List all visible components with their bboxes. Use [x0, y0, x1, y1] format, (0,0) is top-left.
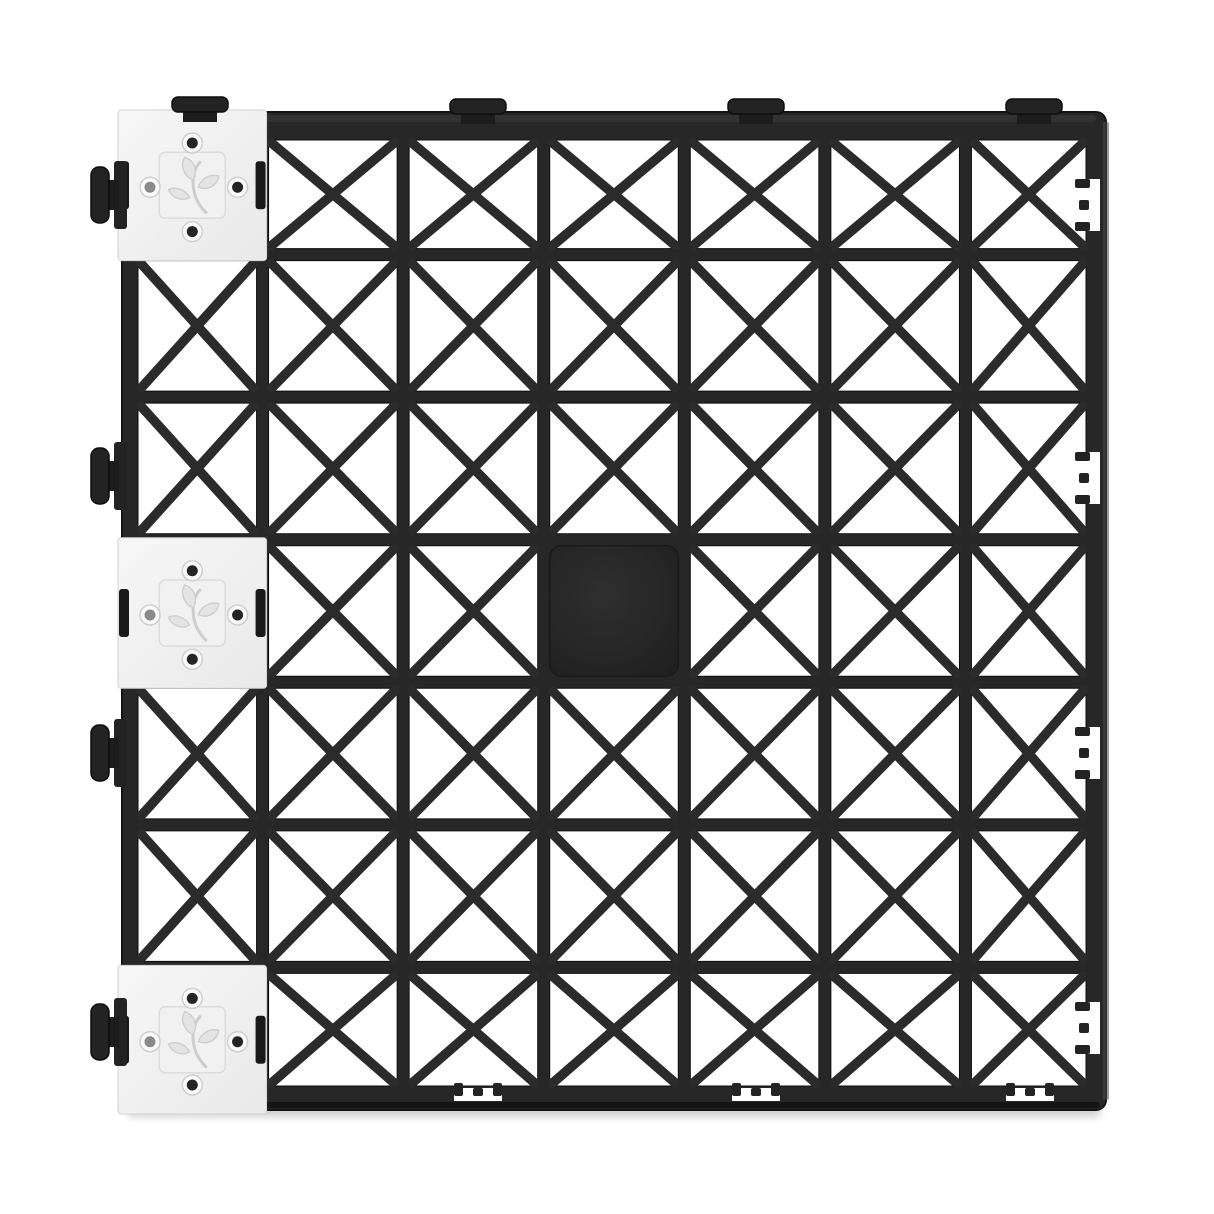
grid-cell — [409, 403, 538, 534]
grid-cell — [831, 403, 960, 534]
notch-tooth — [1075, 1045, 1090, 1054]
grid-cell — [971, 140, 1086, 249]
notch-tooth — [454, 1083, 463, 1096]
corner-insert — [118, 110, 267, 261]
tab-cap — [1006, 99, 1062, 114]
screw-hole-center — [232, 182, 243, 193]
connector-knob-left — [91, 442, 127, 510]
screw-hole — [182, 222, 202, 242]
notch-tooth — [1075, 727, 1090, 736]
notch-latch — [1079, 200, 1089, 210]
grid-cell — [550, 831, 679, 962]
grid-cell — [409, 973, 538, 1086]
grid-cell — [138, 831, 257, 962]
grid-cell — [690, 831, 819, 962]
notch-tooth — [1075, 452, 1090, 461]
tab-cap — [450, 99, 506, 114]
grid-cell — [269, 831, 398, 962]
screw-hole-center — [187, 1080, 198, 1091]
screw-hole-center — [145, 1036, 156, 1047]
grid-cell — [690, 261, 819, 392]
screw-hole — [182, 1075, 202, 1095]
grid-cell — [409, 140, 538, 249]
grid-cell — [550, 973, 679, 1086]
screw-hole-center — [145, 182, 156, 193]
screw-hole-center — [187, 654, 198, 665]
knob-cap — [91, 1004, 109, 1060]
notch-tooth — [1075, 1002, 1090, 1011]
grid-cell — [269, 261, 398, 392]
grid-cell — [550, 688, 679, 819]
insert-right-slot — [256, 589, 266, 637]
grid-cell — [409, 546, 538, 677]
grid-cell — [971, 973, 1086, 1086]
insert-left-slot — [119, 589, 129, 637]
grid-cell — [831, 831, 960, 962]
grid-cell — [971, 688, 1086, 819]
screw-hole-center — [187, 993, 198, 1004]
screw-hole-center — [145, 610, 156, 621]
grid-tile-render — [0, 0, 1214, 1214]
screw-hole-center — [187, 226, 198, 237]
notch-tooth — [1045, 1083, 1054, 1096]
connector-knob-left — [91, 719, 127, 787]
grid-cell — [269, 140, 398, 249]
corner-insert — [118, 965, 267, 1114]
knob-cap — [91, 725, 109, 781]
grid-cell — [409, 831, 538, 962]
grid-cell — [971, 546, 1086, 677]
grid-cell — [269, 546, 398, 677]
notch-tooth — [1075, 179, 1090, 188]
notch-tooth — [1075, 770, 1090, 779]
grid-cell — [550, 140, 679, 249]
connector-knob-left — [91, 998, 127, 1066]
notch-tooth — [771, 1083, 780, 1096]
connector-knob-left — [91, 161, 127, 229]
screw-hole — [228, 605, 248, 625]
solid-center-cell — [550, 546, 679, 677]
tile-right-side-face — [1103, 122, 1109, 1100]
grid-cell — [550, 403, 679, 534]
grid-cell — [138, 261, 257, 392]
notch-tooth — [1075, 495, 1090, 504]
grid-cell — [971, 831, 1086, 962]
insert-right-slot — [256, 1016, 266, 1064]
screw-hole — [182, 988, 202, 1008]
screw-hole — [228, 1032, 248, 1052]
grid-cell — [550, 261, 679, 392]
grid-cell — [269, 688, 398, 819]
screw-hole-center — [232, 1036, 243, 1047]
grid-cell — [971, 403, 1086, 534]
grid-cell — [690, 140, 819, 249]
tile-bottom-lip — [128, 1102, 1100, 1108]
insert-right-slot — [256, 161, 266, 209]
grid-cell — [269, 403, 398, 534]
screw-hole — [182, 649, 202, 669]
screw-hole — [140, 177, 160, 197]
grid-cell — [690, 546, 819, 677]
screw-hole-center — [232, 610, 243, 621]
grid-cell — [690, 688, 819, 819]
screw-hole-center — [187, 138, 198, 149]
grid-cell — [690, 973, 819, 1086]
notch-latch — [1079, 473, 1089, 483]
notch-latch — [1079, 1023, 1089, 1033]
screw-hole — [182, 561, 202, 581]
grid-cell — [831, 973, 960, 1086]
knob-cap — [91, 448, 109, 504]
notch-tooth — [732, 1083, 741, 1096]
screw-hole — [140, 1032, 160, 1052]
grid-cell — [409, 261, 538, 392]
notch-latch — [473, 1088, 483, 1096]
grid-cell — [831, 261, 960, 392]
notch-latch — [751, 1088, 761, 1096]
tile-top-highlight — [132, 115, 1096, 122]
grid-cell — [409, 688, 538, 819]
tab-cap — [728, 99, 784, 114]
notch-tooth — [1006, 1083, 1015, 1096]
grid-cell — [831, 546, 960, 677]
notch-latch — [1025, 1088, 1035, 1096]
grid-cell — [831, 140, 960, 249]
tab-cap — [172, 97, 228, 112]
screw-hole-center — [187, 565, 198, 576]
corner-insert — [118, 538, 267, 689]
grid-cell — [971, 261, 1086, 392]
notch-latch — [1079, 748, 1089, 758]
grid-cell — [269, 973, 398, 1086]
grid-cell — [690, 403, 819, 534]
grid-cell — [138, 403, 257, 534]
grid-cell — [138, 688, 257, 819]
notch-tooth — [493, 1083, 502, 1096]
grid-cell — [831, 688, 960, 819]
notch-tooth — [1075, 222, 1090, 231]
screw-hole — [228, 177, 248, 197]
knob-cap — [91, 167, 109, 223]
product-image-canvas — [0, 0, 1214, 1214]
screw-hole — [140, 605, 160, 625]
screw-hole — [182, 133, 202, 153]
